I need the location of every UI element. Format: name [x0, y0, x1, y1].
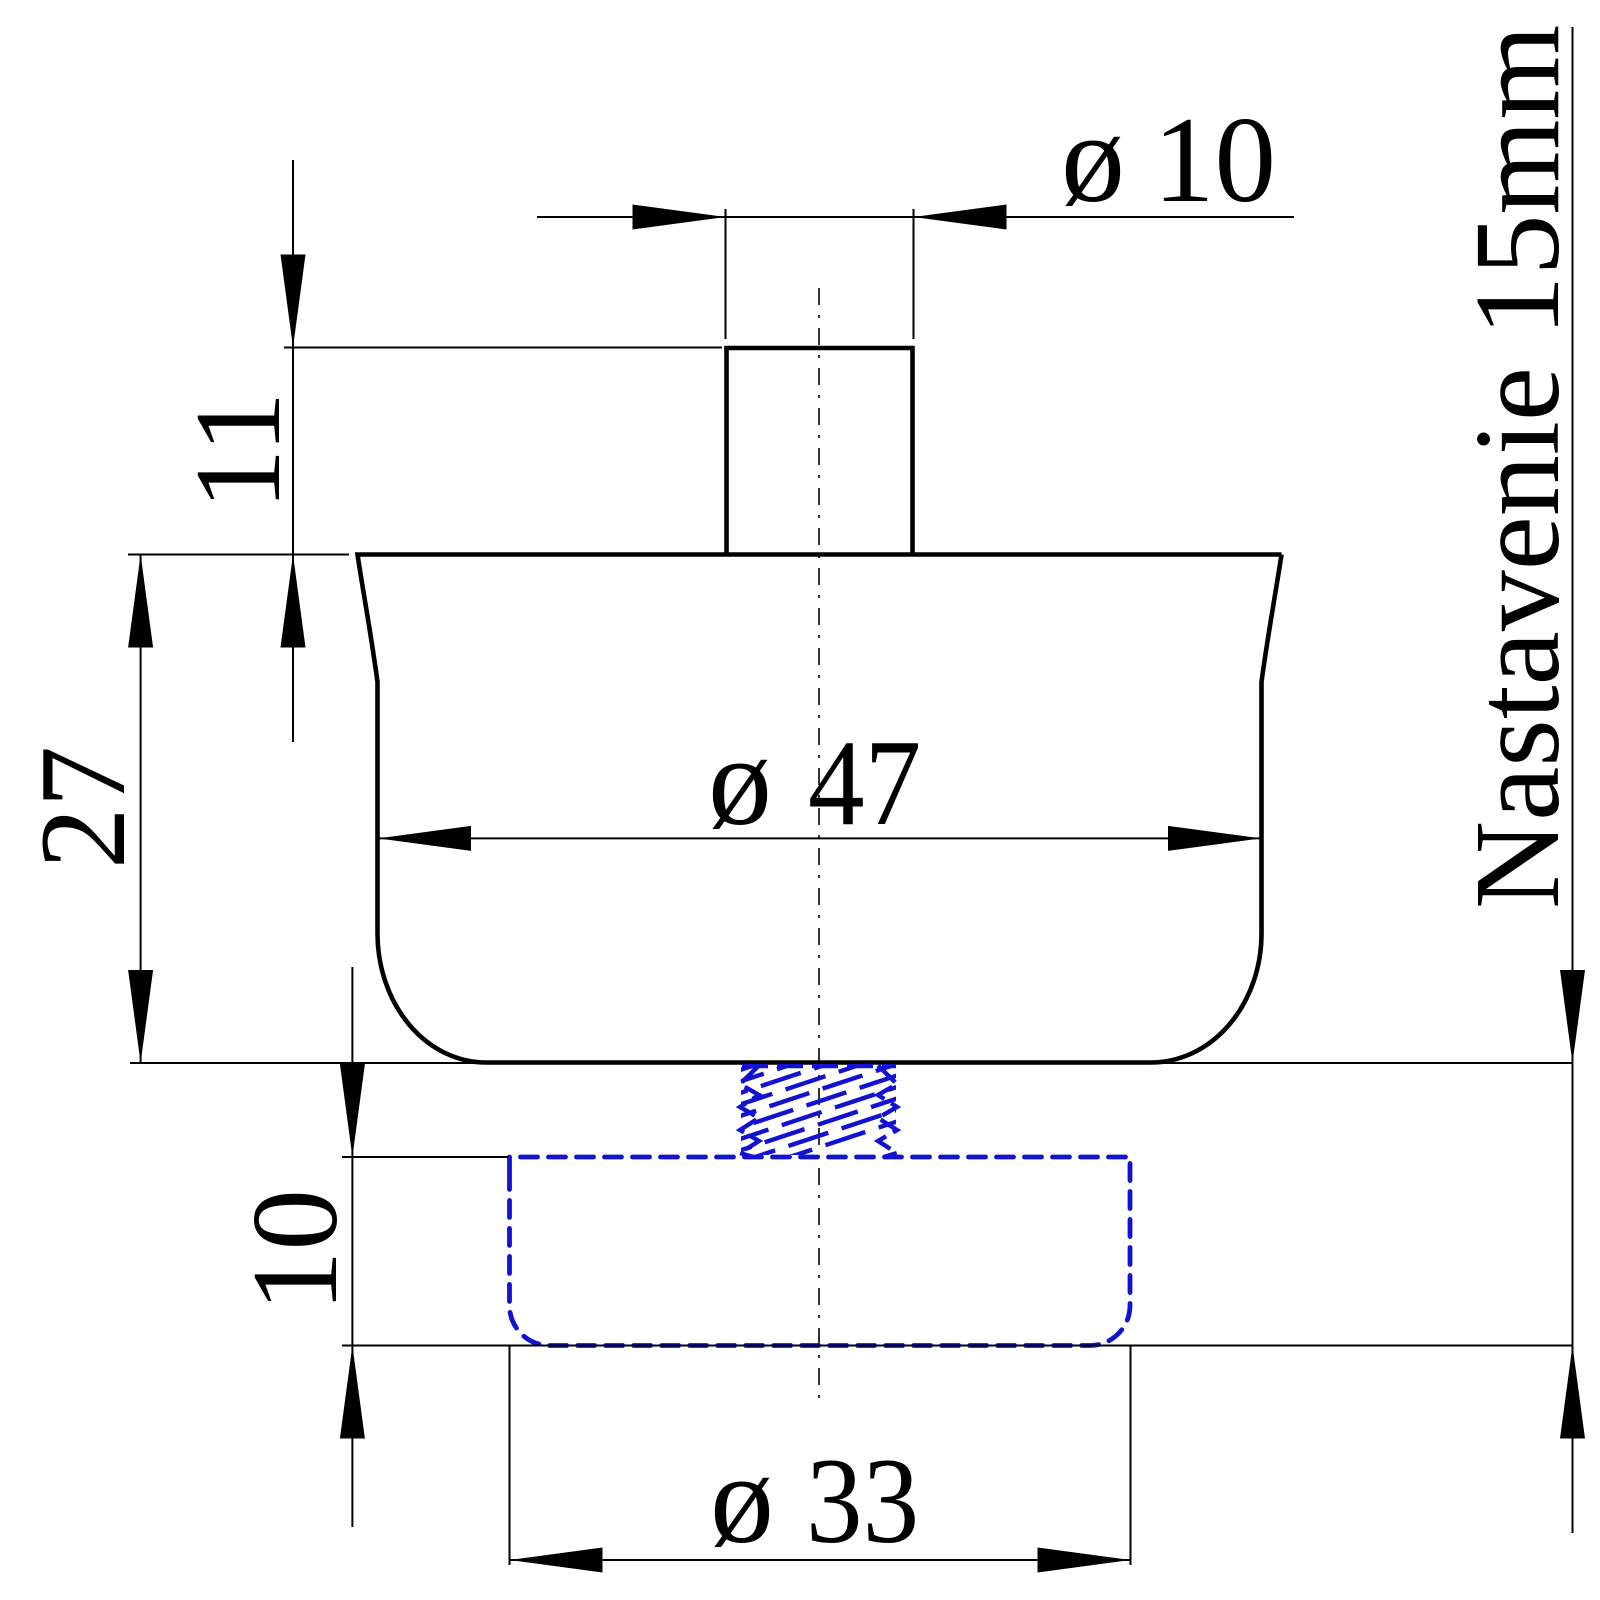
- svg-text:ø: ø: [1061, 87, 1125, 229]
- svg-text:Nastavenie 15mm: Nastavenie 15mm: [1450, 25, 1585, 909]
- svg-text:10: 10: [1153, 91, 1276, 228]
- svg-text:33: 33: [806, 1433, 919, 1569]
- svg-text:11: 11: [169, 392, 306, 510]
- svg-text:ø: ø: [710, 1428, 774, 1570]
- svg-text:ø: ø: [708, 710, 772, 852]
- svg-text:47: 47: [808, 715, 921, 851]
- svg-text:27: 27: [14, 746, 151, 869]
- svg-text:10: 10: [226, 1189, 363, 1312]
